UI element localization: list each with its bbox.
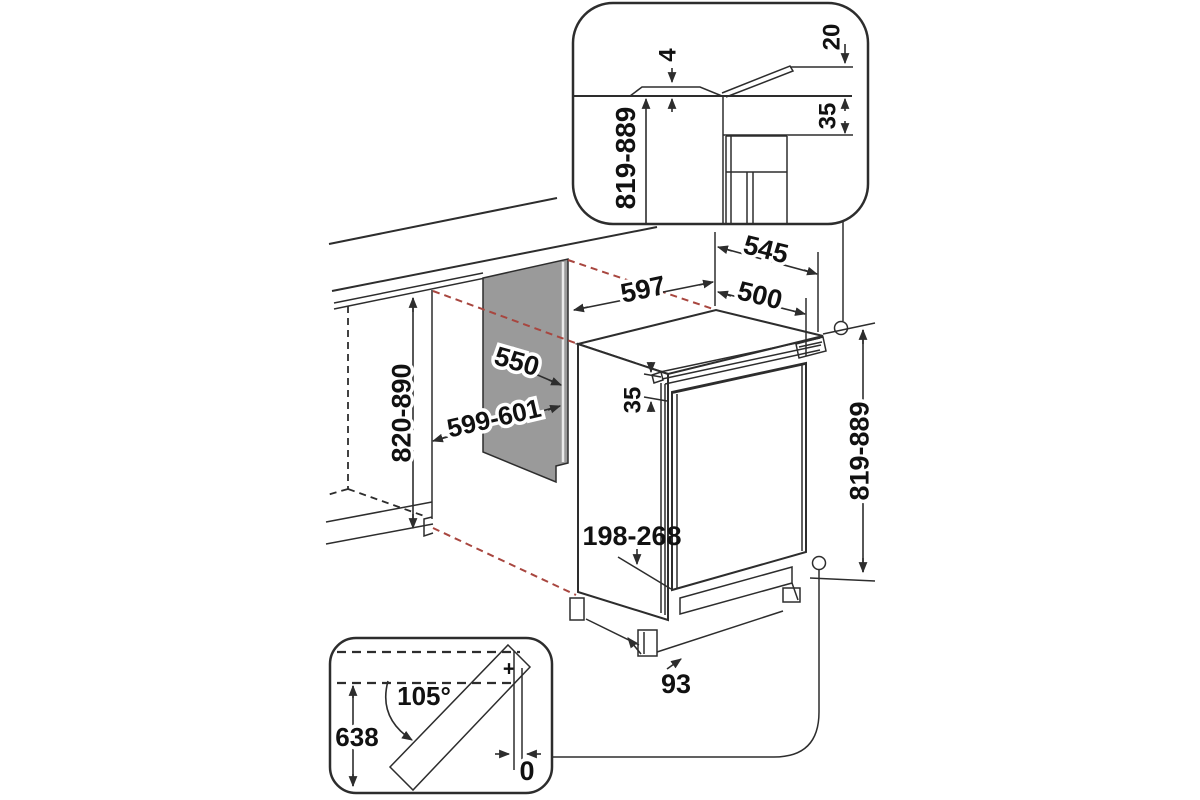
detail-marker-door-bottom [813, 557, 826, 570]
dim-label-door-offset: 35 [619, 387, 646, 414]
dim-label-top-clearance: 35 [814, 103, 841, 130]
dim-label-door-height: 638 [335, 722, 378, 752]
main-isometric-view: 820-890 550 599-601 597 545 [326, 198, 875, 699]
arrow-width-right [699, 282, 713, 285]
niche-left-panel-foot [424, 517, 433, 536]
installation-diagram: 820-890 550 599-601 597 545 [0, 0, 1200, 800]
foot-back-left [570, 598, 584, 620]
dim-label-base-recess: 93 [661, 669, 691, 699]
hidden-edge-floor [348, 489, 427, 517]
dim-label-total-depth: 545 [740, 229, 791, 269]
dim-label-width: 597 [618, 270, 668, 309]
door-swing-inset: + 105° 638 0 [330, 570, 819, 793]
dim-label-niche-height: 820-890 [386, 363, 416, 462]
foot-front-left [638, 630, 657, 656]
top-clearance-inset: 4 20 35 819-889 [573, 3, 868, 335]
detail-marker-top [835, 322, 848, 335]
counter-front-bottom-edge [334, 273, 483, 303]
dim-label-opening-angle: 105° [397, 681, 451, 711]
dim-label-deflector-rise: 20 [818, 24, 845, 51]
dim-label-side-clearance: 0 [519, 756, 534, 786]
dim-label-inset-height: 819-889 [610, 107, 641, 210]
floor-line [326, 524, 433, 544]
refrigerator [570, 310, 826, 656]
arrow-total-depth-left [718, 247, 732, 251]
dim-label-deflector-thickness: 4 [654, 48, 681, 62]
arrow-base-recess-right [667, 659, 681, 669]
arrow-niche-width-left [433, 437, 446, 441]
base-bottom-front-line [657, 611, 783, 652]
dim-label-overall-height: 819-889 [844, 401, 874, 500]
counter-back-edge [329, 198, 557, 244]
diagram-canvas: 820-890 550 599-601 597 545 [0, 0, 1200, 800]
dim-label-door-depth: 500 [734, 275, 785, 315]
fridge-door-face [672, 363, 806, 590]
arrow-door-depth-right [793, 311, 805, 314]
plinth-top-line [326, 502, 432, 522]
hidden-edge-left [327, 489, 348, 495]
arrow-width-left [574, 307, 588, 310]
base-bottom-right-line [792, 583, 798, 600]
door-inset-connector [552, 570, 819, 757]
dim-label-plinth: 198-268 [582, 521, 681, 551]
ext-line-height-top [823, 323, 875, 334]
projection-bottom [433, 528, 576, 595]
arrow-total-depth-right [804, 270, 817, 274]
arrow-base-recess-left [628, 638, 641, 654]
